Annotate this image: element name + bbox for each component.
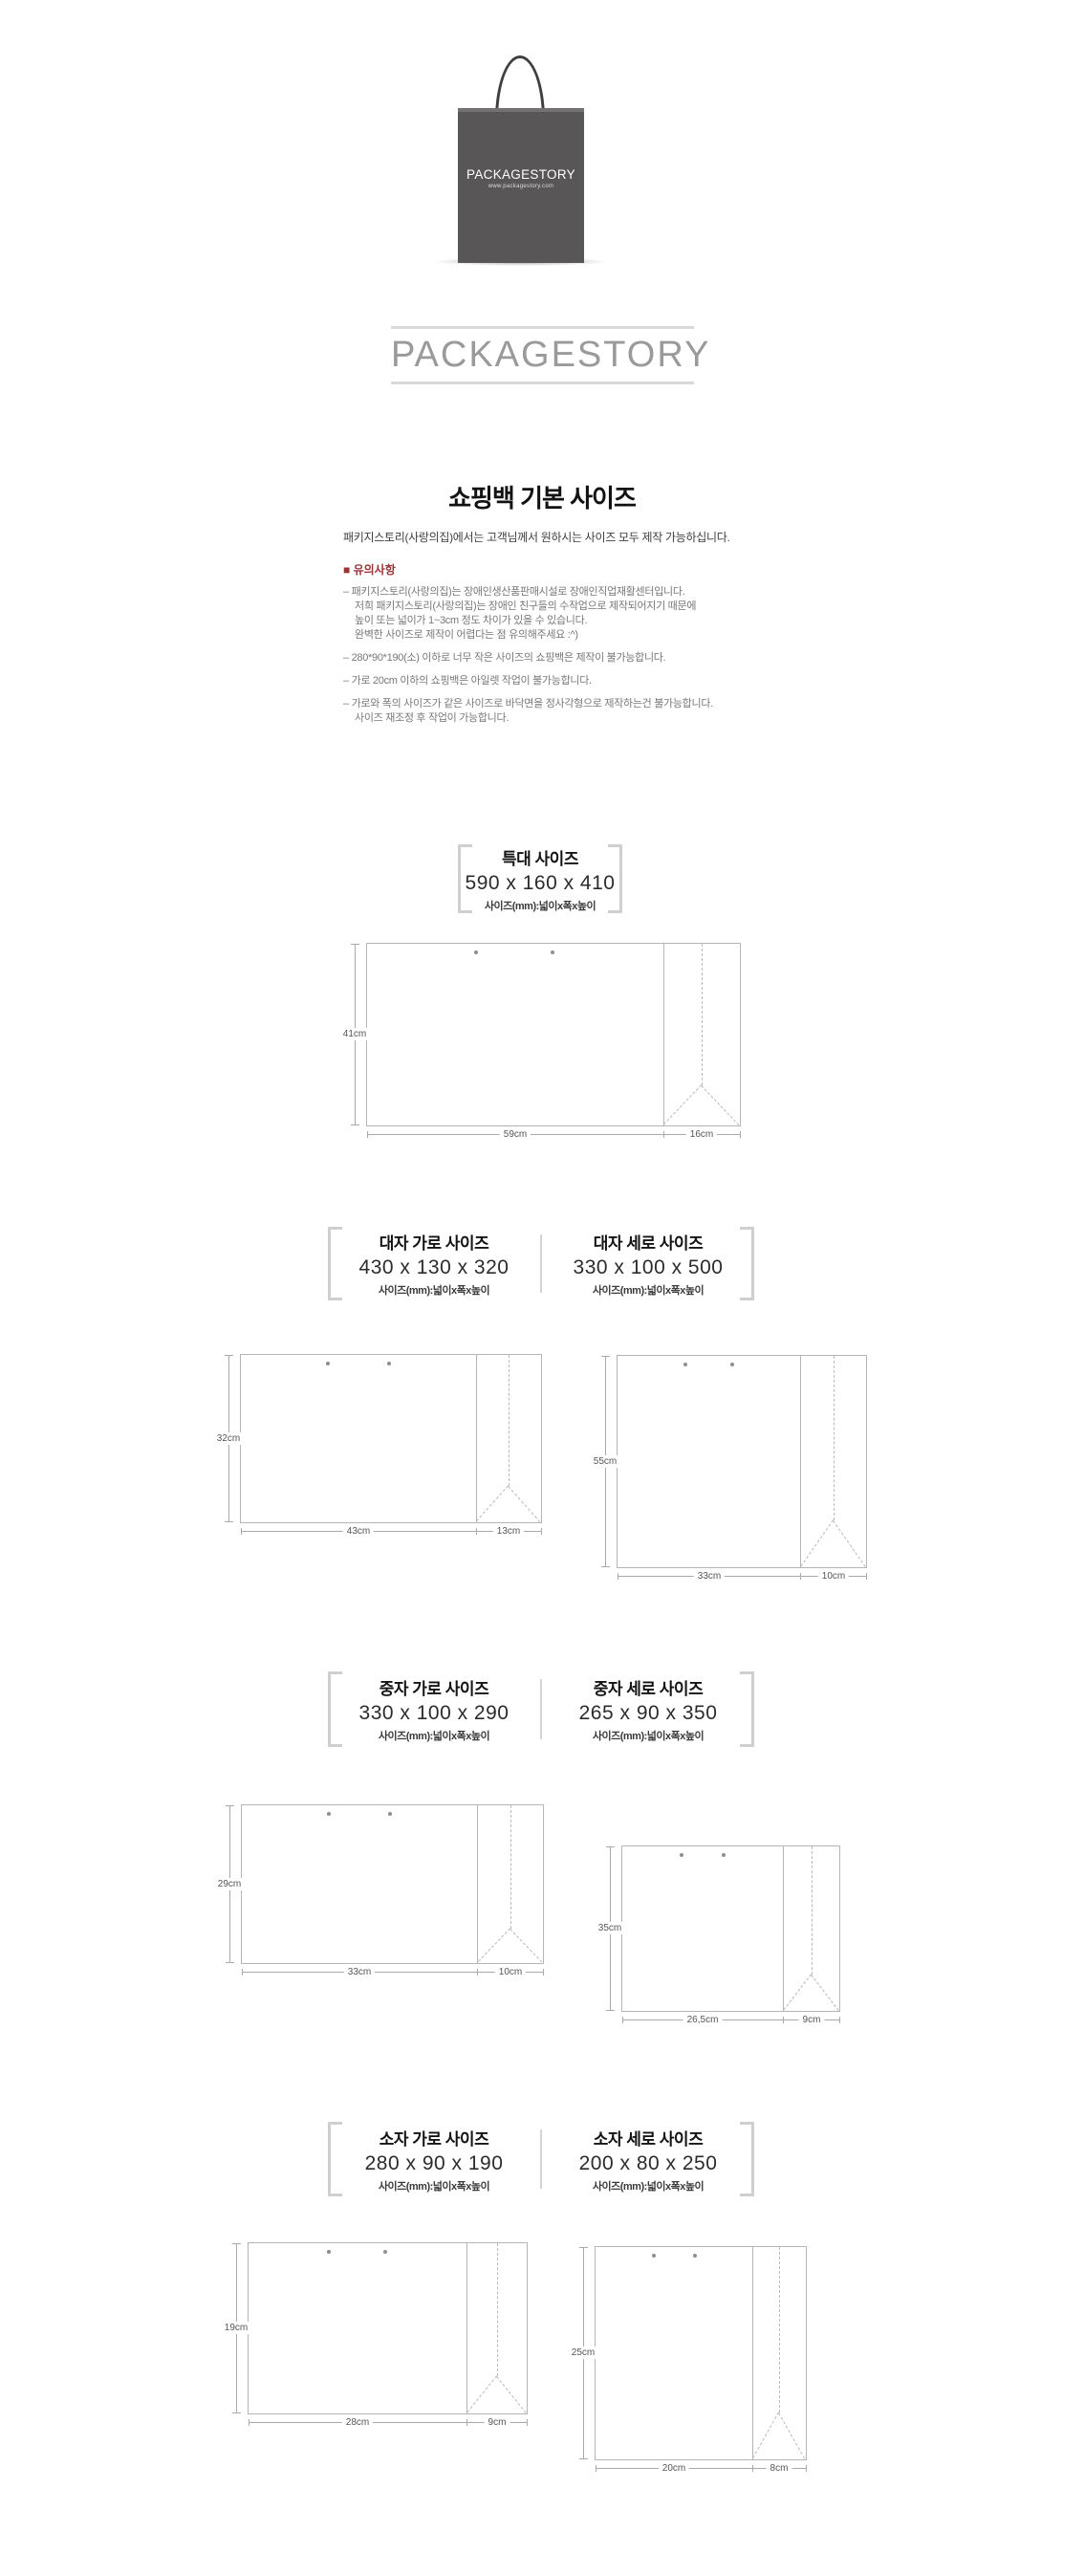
eyelet-dot xyxy=(387,1362,391,1365)
eyelet-dot xyxy=(326,1362,330,1365)
eyelet-dot xyxy=(680,1853,683,1857)
gusset-diagonal-dashed-line xyxy=(509,1929,542,1963)
size-dims: 200 x 80 x 250 xyxy=(542,2152,754,2175)
gusset-diagonal-dashed-line xyxy=(800,1519,833,1566)
dimension-cap xyxy=(232,2243,241,2244)
notice-title: ■ 유의사항 xyxy=(343,561,783,578)
notice-line: – 패키지스토리(사랑의집)는 장애인생산품판매시설로 장애인직업재활센터입니다… xyxy=(343,585,783,600)
dimension-tick xyxy=(242,1969,243,1976)
product-detail-page: PACKAGESTORY www.packagestory.com PACKAG… xyxy=(0,0,1084,2576)
dimension-cap xyxy=(226,1805,234,1806)
page-title: 쇼핑백 기본 사이즈 xyxy=(0,479,1084,514)
height-label: 19cm xyxy=(221,2322,251,2334)
gusset-fold-line xyxy=(800,1356,801,1567)
bag-diagram-xl: 41cm59cm16cm xyxy=(366,943,741,1126)
dimension-tick xyxy=(596,2465,596,2472)
size-unit-note: 사이즈(mm):넓이x폭x높이 xyxy=(542,2178,754,2194)
size-section-header-xl: 특대 사이즈 590 x 160 x 410 사이즈(mm):넓이x폭x높이 xyxy=(458,844,622,913)
size-title: 대자 가로 사이즈 xyxy=(328,1230,540,1254)
bracket-right-icon xyxy=(740,2122,754,2196)
size-title: 특대 사이즈 xyxy=(458,845,622,869)
eyelet-dot xyxy=(722,1853,726,1857)
size-unit-note: 사이즈(mm):넓이x폭x높이 xyxy=(542,1282,754,1298)
gusset-label: 16cm xyxy=(686,1128,717,1141)
size-dims: 330 x 100 x 500 xyxy=(542,1256,754,1279)
dimension-cap xyxy=(232,2412,241,2413)
dimension-tick xyxy=(466,2419,467,2426)
logo-rule-bottom xyxy=(391,382,694,384)
gusset-diagonal-dashed-line xyxy=(783,1974,811,2010)
size-title: 대자 세로 사이즈 xyxy=(542,1230,754,1254)
gusset-center-dashed-line xyxy=(509,1355,509,1486)
gusset-label: 13cm xyxy=(493,1525,524,1538)
size-card-medium-horizontal: 중자 가로 사이즈 330 x 100 x 290 사이즈(mm):넓이x폭x높… xyxy=(328,1675,540,1743)
size-title: 중자 가로 사이즈 xyxy=(328,1675,540,1699)
size-card-large-horizontal: 대자 가로 사이즈 430 x 130 x 320 사이즈(mm):넓이x폭x높… xyxy=(328,1230,540,1298)
gusset-diagonal-dashed-line xyxy=(477,1928,509,1962)
dimension-cap xyxy=(601,1356,610,1357)
width-label: 59cm xyxy=(500,1128,531,1141)
bag-diagram-large-vertical: 55cm33cm10cm xyxy=(617,1355,867,1568)
eyelet-dot xyxy=(683,1363,687,1366)
gusset-fold-line xyxy=(466,2243,467,2413)
eyelet-dot xyxy=(327,2250,331,2254)
width-label: 28cm xyxy=(342,2416,373,2429)
size-unit-note: 사이즈(mm):넓이x폭x높이 xyxy=(328,2178,540,2194)
size-card-xl: 특대 사이즈 590 x 160 x 410 사이즈(mm):넓이x폭x높이 xyxy=(458,845,622,913)
bag-diagram-medium-vertical: 35cm26,5cm9cm xyxy=(621,1845,840,2012)
intro-lead: 패키지스토리(사랑의집)에서는 고객님께서 원하시는 사이즈 모두 제작 가능하… xyxy=(343,529,783,545)
gusset-center-dashed-line xyxy=(702,944,703,1085)
bracket-left-icon xyxy=(458,844,472,913)
notice-line: – 가로 20cm 이하의 쇼핑백은 아일렛 작업이 불가능합니다. xyxy=(343,674,783,688)
dimension-cap xyxy=(579,2247,588,2248)
eyelet-dot xyxy=(383,2250,387,2254)
dimension-cap xyxy=(226,1962,234,1963)
dimension-tick xyxy=(367,1131,368,1138)
notice-line: – 가로와 폭의 사이즈가 같은 사이즈로 바닥면을 정사각형으로 제작하는건 … xyxy=(343,697,783,711)
gusset-diagonal-dashed-line xyxy=(476,1485,509,1521)
width-label: 33cm xyxy=(344,1966,375,1978)
dimension-tick xyxy=(477,1969,478,1976)
width-label: 33cm xyxy=(694,1570,725,1583)
bracket-left-icon xyxy=(328,2122,342,2196)
size-title: 중자 세로 사이즈 xyxy=(542,1675,754,1699)
dimension-tick xyxy=(241,1528,242,1535)
gusset-diagonal-dashed-line xyxy=(466,2375,496,2412)
bag-diagram-small-horizontal: 19cm28cm9cm xyxy=(248,2242,528,2414)
gusset-center-dashed-line xyxy=(497,2243,498,2376)
size-dims: 280 x 90 x 190 xyxy=(328,2152,540,2175)
gusset-label: 9cm xyxy=(485,2416,510,2429)
size-card-large-vertical: 대자 세로 사이즈 330 x 100 x 500 사이즈(mm):넓이x폭x높… xyxy=(542,1230,754,1298)
size-dims: 590 x 160 x 410 xyxy=(458,872,622,895)
dimension-tick xyxy=(541,1528,542,1535)
gusset-label: 9cm xyxy=(799,2014,825,2026)
notice-list: – 패키지스토리(사랑의집)는 장애인생산품판매시설로 장애인직업재활센터입니다… xyxy=(343,585,783,726)
dimension-cap xyxy=(225,1521,233,1522)
intro-block: 패키지스토리(사랑의집)에서는 고객님께서 원하시는 사이즈 모두 제작 가능하… xyxy=(343,529,783,726)
bracket-right-icon xyxy=(740,1671,754,1747)
size-card-medium-vertical: 중자 세로 사이즈 265 x 90 x 350 사이즈(mm):넓이x폭x높이 xyxy=(542,1675,754,1743)
height-label: 55cm xyxy=(590,1455,620,1468)
bag-url-text: www.packagestory.com xyxy=(458,184,584,189)
width-label: 26,5cm xyxy=(683,2014,723,2026)
dimension-cap xyxy=(225,1355,233,1356)
dimension-tick xyxy=(622,2017,623,2023)
dimension-cap xyxy=(601,1566,610,1567)
dimension-tick xyxy=(806,2465,807,2472)
eyelet-dot xyxy=(474,950,478,954)
size-unit-note: 사이즈(mm):넓이x폭x높이 xyxy=(328,1282,540,1298)
width-label: 20cm xyxy=(659,2462,689,2475)
brand-logo: PACKAGESTORY xyxy=(391,326,694,384)
eyelet-dot xyxy=(388,1812,392,1816)
size-title: 소자 가로 사이즈 xyxy=(328,2126,540,2150)
gusset-diagonal-dashed-line xyxy=(701,1085,739,1125)
bracket-right-icon xyxy=(740,1227,754,1300)
dimension-tick xyxy=(752,2465,753,2472)
size-unit-note: 사이즈(mm):넓이x폭x높이 xyxy=(328,1728,540,1743)
bag-diagram-small-vertical: 25cm20cm8cm xyxy=(595,2246,807,2460)
dimension-tick xyxy=(618,1573,618,1580)
gusset-fold-line xyxy=(752,2247,753,2459)
dimension-cap xyxy=(351,1124,359,1125)
size-card-small-vertical: 소자 세로 사이즈 200 x 80 x 250 사이즈(mm):넓이x폭x높이 xyxy=(542,2126,754,2194)
size-section-header-large: 대자 가로 사이즈 430 x 130 x 320 사이즈(mm):넓이x폭x높… xyxy=(328,1227,754,1300)
notice-line: 완벽한 사이즈로 제작이 어렵다는 점 유의해주세요 :^) xyxy=(343,628,783,643)
gusset-diagonal-dashed-line xyxy=(778,2412,805,2458)
gusset-center-dashed-line xyxy=(812,1846,813,1975)
size-card-small-horizontal: 소자 가로 사이즈 280 x 90 x 190 사이즈(mm):넓이x폭x높이 xyxy=(328,2126,540,2194)
dimension-tick xyxy=(476,1528,477,1535)
gusset-center-dashed-line xyxy=(510,1805,511,1929)
bag-diagram-large-horizontal: 32cm43cm13cm xyxy=(240,1354,542,1523)
gusset-fold-line xyxy=(663,944,664,1125)
dimension-tick xyxy=(249,2419,249,2426)
size-section-header-medium: 중자 가로 사이즈 330 x 100 x 290 사이즈(mm):넓이x폭x높… xyxy=(328,1671,754,1747)
dimension-cap xyxy=(579,2458,588,2459)
size-unit-note: 사이즈(mm):넓이x폭x높이 xyxy=(458,898,622,913)
dimension-tick xyxy=(740,1131,741,1138)
gusset-label: 10cm xyxy=(495,1966,526,1978)
gusset-center-dashed-line xyxy=(834,1356,835,1520)
eyelet-dot xyxy=(693,2254,697,2258)
dimension-tick xyxy=(543,1969,544,1976)
gusset-fold-line xyxy=(477,1805,478,1963)
height-label: 32cm xyxy=(213,1432,244,1445)
eyelet-dot xyxy=(730,1363,734,1366)
notice-line: 저희 패키지스토리(사랑의집)는 장애인 친구들의 수작업으로 제작되어지기 때… xyxy=(343,600,783,614)
eyelet-dot xyxy=(327,1812,331,1816)
eyelet-dot xyxy=(652,2254,656,2258)
dimension-tick xyxy=(866,1573,867,1580)
bracket-left-icon xyxy=(328,1671,342,1747)
gusset-diagonal-dashed-line xyxy=(663,1084,702,1124)
gusset-center-dashed-line xyxy=(779,2247,780,2412)
eyelet-dot xyxy=(551,950,554,954)
bracket-left-icon xyxy=(328,1227,342,1300)
size-dims: 265 x 90 x 350 xyxy=(542,1702,754,1725)
size-title: 소자 세로 사이즈 xyxy=(542,2126,754,2150)
gusset-diagonal-dashed-line xyxy=(496,2376,526,2413)
size-dims: 430 x 130 x 320 xyxy=(328,1256,540,1279)
dimension-tick xyxy=(663,1131,664,1138)
bag-diagram-medium-horizontal: 29cm33cm10cm xyxy=(241,1804,544,1964)
size-unit-note: 사이즈(mm):넓이x폭x높이 xyxy=(542,1728,754,1743)
size-dims: 330 x 100 x 290 xyxy=(328,1702,540,1725)
notice-line: 사이즈 재조정 후 작업이 가능합니다. xyxy=(343,711,783,726)
notice-line: 높이 또는 넓이가 1~3cm 정도 차이가 있을 수 있습니다. xyxy=(343,614,783,628)
shopping-bag-graphic: PACKAGESTORY www.packagestory.com xyxy=(458,55,584,268)
height-label: 41cm xyxy=(339,1028,370,1040)
width-label: 43cm xyxy=(343,1525,374,1538)
dimension-cap xyxy=(606,1846,615,1847)
bag-brand-text: PACKAGESTORY xyxy=(458,167,584,182)
dimension-tick xyxy=(839,2017,840,2023)
notice-line: – 280*90*190(소) 이하로 너무 작은 사이즈의 쇼핑백은 제작이 … xyxy=(343,651,783,666)
bag-body: PACKAGESTORY www.packagestory.com xyxy=(458,108,584,263)
gusset-label: 8cm xyxy=(767,2462,792,2475)
size-section-header-small: 소자 가로 사이즈 280 x 90 x 190 사이즈(mm):넓이x폭x높이… xyxy=(328,2122,754,2196)
dimension-cap xyxy=(351,944,359,945)
logo-text: PACKAGESTORY xyxy=(391,329,694,382)
gusset-fold-line xyxy=(476,1355,477,1522)
gusset-label: 10cm xyxy=(818,1570,849,1583)
height-label: 29cm xyxy=(214,1878,245,1890)
height-label: 35cm xyxy=(595,1922,625,1934)
dimension-tick xyxy=(783,2017,784,2023)
bracket-right-icon xyxy=(608,844,622,913)
gusset-diagonal-dashed-line xyxy=(508,1486,540,1522)
gusset-diagonal-dashed-line xyxy=(833,1520,865,1567)
gusset-diagonal-dashed-line xyxy=(752,2412,779,2458)
dimension-tick xyxy=(527,2419,528,2426)
dimension-cap xyxy=(606,2010,615,2011)
height-label: 25cm xyxy=(568,2347,598,2359)
gusset-fold-line xyxy=(783,1846,784,2011)
dimension-tick xyxy=(800,1573,801,1580)
gusset-diagonal-dashed-line xyxy=(811,1975,838,2011)
